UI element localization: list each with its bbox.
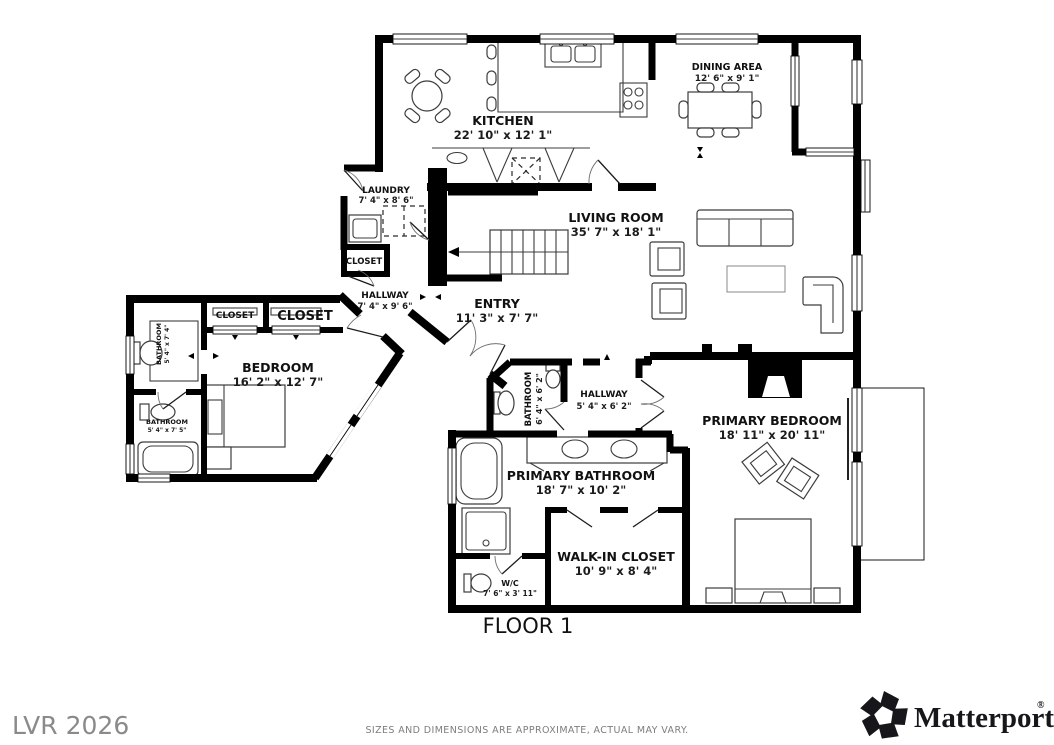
door — [589, 160, 620, 184]
room-label-bath-lower: BATHROOM — [146, 418, 188, 426]
bar-stools — [487, 45, 496, 111]
room-label-bath-upper: BATHROOM — [155, 323, 163, 365]
living-fixtures — [650, 210, 843, 333]
primary-bed — [706, 519, 840, 603]
room-dims-bath-lower: 5' 4" x 7' 5" — [148, 427, 187, 434]
pedestal-sink-icon — [494, 391, 514, 415]
room-label-living: LIVING ROOM — [568, 210, 663, 225]
armchair — [652, 283, 686, 319]
bathtub-icon — [456, 438, 502, 504]
door — [344, 170, 363, 191]
room-dims-bedroom: 16' 2" x 12' 7" — [233, 375, 323, 389]
room-label-hallway-west: HALLWAY — [361, 291, 409, 301]
window — [138, 474, 170, 482]
room-label-walk-in-closet: WALK-IN CLOSET — [557, 549, 675, 564]
window — [448, 448, 456, 504]
coffee-table — [727, 266, 785, 292]
window — [126, 444, 134, 474]
french-doors — [641, 380, 664, 428]
brand-logo: Matterport ® — [857, 691, 1054, 745]
room-dims-bath-mid: 6' 4" x 6' 2" — [535, 373, 544, 425]
room-label-kitchen: KITCHEN — [472, 113, 534, 128]
window — [852, 462, 862, 546]
room-label-primary-bedroom: PRIMARY BEDROOM — [702, 413, 842, 428]
door — [347, 315, 383, 337]
door — [545, 402, 564, 430]
room-dims-living: 35' 7" x 18' 1" — [571, 225, 661, 239]
laundry-fixtures — [349, 206, 425, 242]
closet-slider — [213, 326, 257, 334]
room-dims-walk-in-closet: 10' 9" x 8' 4" — [575, 564, 657, 578]
window-diagonal — [357, 385, 378, 416]
room-dims-hallway-west: 7' 4" x 9' 6" — [357, 302, 412, 312]
kitchen-fixtures — [403, 39, 647, 184]
window — [126, 336, 134, 374]
kitchen-base-cabinets — [432, 148, 590, 184]
window — [852, 255, 862, 311]
room-dims-wc: 7' 6" x 3' 11" — [483, 589, 537, 598]
room-label-primary-bathroom: PRIMARY BATHROOM — [507, 468, 655, 483]
door — [410, 222, 429, 240]
kitchen-round-table — [412, 81, 442, 111]
room-label-closet-b: CLOSET — [277, 309, 333, 324]
toilet-icon — [546, 364, 560, 388]
matterport-pinwheel-icon — [857, 691, 912, 745]
sofa — [697, 210, 793, 246]
floorplan-canvas: KITCHEN 22' 10" x 12' 1" DINING AREA 12'… — [0, 0, 1054, 745]
room-dims-bath-upper: 5' 4" x 7' 4" — [164, 325, 171, 364]
door — [495, 556, 522, 574]
dining-fixtures — [679, 83, 761, 137]
window — [852, 60, 862, 104]
room-dims-primary-bedroom: 18' 11" x 20' 11" — [719, 428, 825, 442]
window — [861, 160, 870, 212]
kitchen-sink — [545, 41, 601, 67]
room-label-entry: ENTRY — [474, 296, 520, 311]
armchair — [650, 242, 684, 276]
window — [852, 388, 862, 452]
double-vanity — [527, 437, 667, 471]
window — [540, 34, 614, 44]
room-dims-hallway-mid: 5' 4" x 6' 2" — [576, 402, 631, 412]
window — [393, 34, 467, 44]
deck — [860, 388, 924, 560]
room-label-laundry: LAUNDRY — [362, 186, 410, 196]
room-dims-laundry: 7' 4" x 8' 6" — [358, 196, 413, 206]
watermark-text: LVR 2026 — [12, 711, 129, 740]
registered-mark: ® — [1037, 700, 1045, 711]
entry-double-door — [447, 320, 505, 374]
dining-table — [688, 92, 752, 128]
stairs-direction-arrow — [448, 247, 459, 257]
bed — [205, 385, 285, 447]
room-label-dining: DINING AREA — [692, 62, 763, 73]
accent-chair — [742, 442, 784, 484]
room-dims-primary-bathroom: 18' 7" x 10' 2" — [536, 483, 626, 497]
room-label-bath-mid: BATHROOM — [524, 372, 534, 427]
disclaimer-text: SIZES AND DIMENSIONS ARE APPROXIMATE, AC… — [365, 725, 688, 736]
room-label-hallway-mid: HALLWAY — [580, 390, 628, 400]
window — [806, 148, 854, 156]
room-dims-kitchen: 22' 10" x 12' 1" — [454, 128, 552, 142]
room-label-bedroom: BEDROOM — [242, 360, 314, 375]
sectional-chair — [803, 277, 843, 333]
floor-label: FLOOR 1 — [483, 614, 574, 638]
brand-wordmark: Matterport — [914, 702, 1054, 734]
room-dims-entry: 11' 3" x 7' 7" — [456, 311, 538, 325]
bathtub-icon — [138, 442, 198, 476]
bench — [205, 447, 231, 469]
kitchen-counter — [498, 39, 623, 112]
closet-slider — [272, 326, 320, 334]
window — [791, 56, 799, 106]
shower-icon — [462, 508, 510, 554]
stairs — [448, 230, 568, 274]
window — [676, 34, 758, 44]
stove-icon — [620, 83, 647, 117]
room-dims-dining: 12' 6" x 9' 1" — [695, 74, 760, 84]
room-label-closet-a: CLOSET — [216, 311, 255, 321]
room-label-closet-small: CLOSET — [346, 257, 383, 267]
room-label-wc: W/C — [501, 579, 519, 588]
window-diagonal — [330, 425, 351, 456]
floorplan-page: KITCHEN 22' 10" x 12' 1" DINING AREA 12'… — [0, 0, 1054, 745]
